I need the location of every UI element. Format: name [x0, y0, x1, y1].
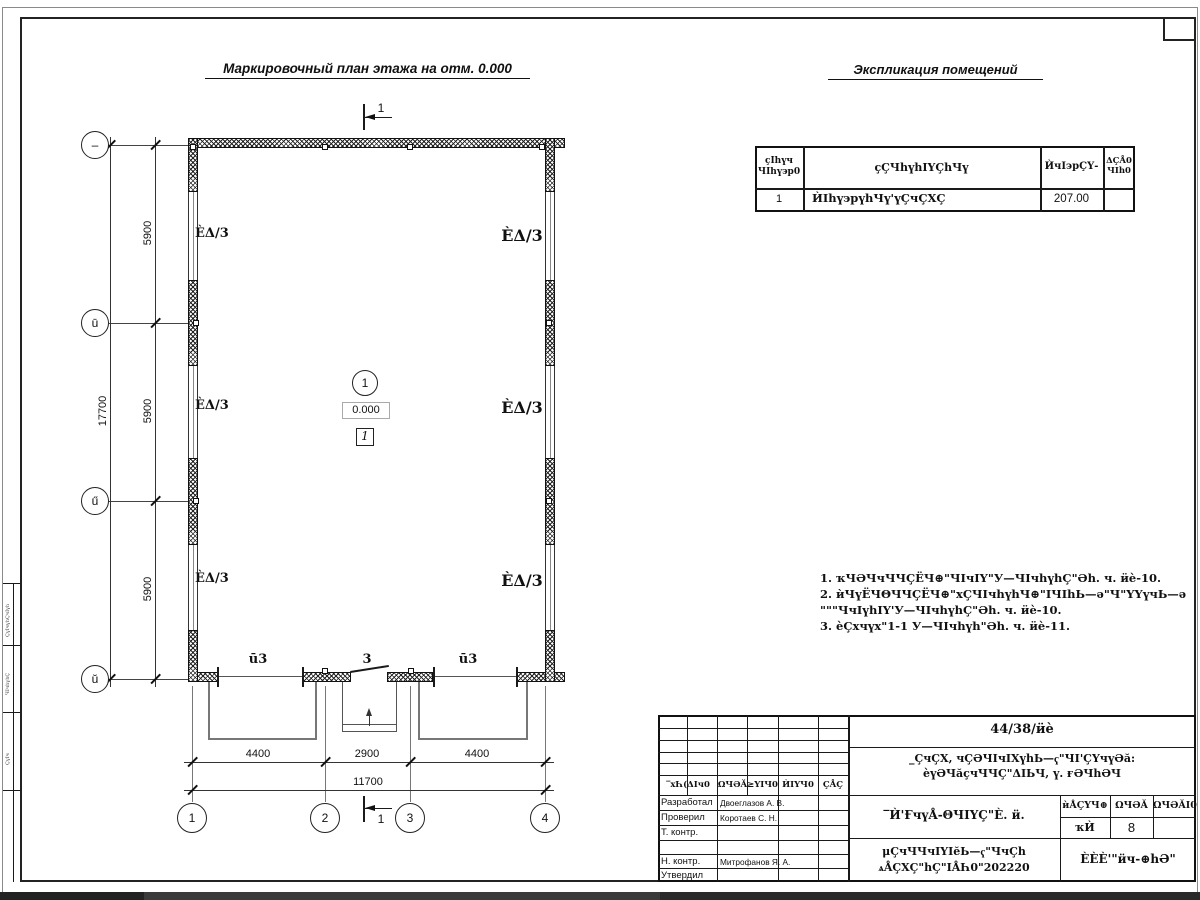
- row-axis-bubble: ū: [81, 309, 109, 337]
- dim-value: 2900: [339, 748, 395, 760]
- row-axis-label: –: [92, 138, 99, 152]
- column-mark: [546, 498, 552, 504]
- window-label: ÈΔ/3: [195, 571, 229, 586]
- dim-line: [110, 137, 111, 687]
- tb-role: Утвердил: [661, 870, 703, 881]
- col-axis-bubble: 4: [530, 803, 560, 833]
- header-line: ЧIһү϶р0: [755, 167, 803, 178]
- dim-total: 11700: [333, 776, 403, 788]
- strip-line: [3, 790, 20, 791]
- dim-value: 5900: [142, 381, 154, 441]
- row-axis-bubble: –: [81, 131, 109, 159]
- wall-top: [188, 138, 565, 148]
- header-line: ҫIһүч: [755, 156, 803, 167]
- window-label: ÈΔ/3: [498, 226, 546, 245]
- strip-line: [13, 583, 14, 882]
- note-line: 1. ҡЧӘЧчЧЧҪЁЧ⊕"ЧIчIΥ"У—ЧIчhүhҪ"Әh. ч. ӥè…: [820, 571, 1161, 585]
- wall-bottom-seg: [517, 672, 565, 682]
- room-number: 1: [362, 376, 369, 390]
- gate-label: ū3: [448, 652, 488, 667]
- tb-drawing-title: ‾Ѝ'ҒчүÅ-ΘЧIΥҪ"È. ӥ.: [848, 808, 1060, 822]
- tb-project-line2: ѐүӘЧăҫчЧЧҪ"ΔIЬЧ, ү. ғӘЧhӘЧ: [848, 767, 1196, 780]
- gate-label: ū3: [238, 652, 278, 667]
- row-axis-bubble: ű: [81, 487, 109, 515]
- explication-row-num: 1: [755, 193, 803, 205]
- col-axis-label: 3: [407, 811, 414, 825]
- explication-title: Экспликация помещений: [828, 62, 1043, 80]
- note-line: """ЧчIүhIΥ'У—ЧIчhүhҪ"Әh. ч. ӥè-10.: [820, 603, 1062, 617]
- entry-arrow-icon: [366, 708, 372, 716]
- column-mark: [407, 144, 413, 150]
- dim-line: [155, 137, 156, 687]
- tb-name: Митрофанов Я. А.: [720, 857, 790, 867]
- wall-right-seg: [545, 630, 555, 682]
- column-mark: [190, 144, 196, 150]
- column-mark: [193, 320, 199, 326]
- col-axis-label: 2: [322, 811, 329, 825]
- axis-line: [109, 679, 188, 680]
- window-label: ÈΔ/3: [498, 571, 546, 590]
- explication-header-area: ЍчI϶рҪΥ-: [1040, 161, 1103, 172]
- section-number: 1: [372, 101, 390, 115]
- axis-line: [545, 686, 546, 802]
- tb-org-line2: ѧÅҪΧҪ"hҪ"IÅҺ0"202220: [848, 861, 1060, 874]
- gate-threshold: [218, 676, 303, 677]
- tb-name: Двоеглазов А. В.: [720, 798, 784, 808]
- strip-label: ЧΙчһүһҪ: [5, 659, 11, 695]
- column-mark: [546, 320, 552, 326]
- tb-doc-number: 44/38/ӥè: [848, 722, 1196, 737]
- dim-value: 4400: [449, 748, 505, 760]
- tb-sheet-value: 8: [1110, 820, 1153, 835]
- dim-value: 4400: [230, 748, 286, 760]
- tb-header-kol: ΩЧӘĂ: [717, 780, 748, 790]
- tb-role: Т. контр.: [661, 827, 698, 838]
- window-label: ÈΔ/3: [195, 398, 229, 413]
- strip-line: [3, 712, 20, 713]
- note-line: 3. ѐҪхчүх"1-1 У—ЧIчhүh"Әh. ч. ӥè-11.: [820, 619, 1070, 633]
- axis-line: [109, 323, 188, 324]
- corner-cell: [1163, 17, 1196, 41]
- explication-row-area: 207.00: [1040, 193, 1103, 205]
- strip-label: ҪүΙч: [5, 737, 11, 765]
- column-mark: [322, 144, 328, 150]
- explication-row-name: ЍIһү϶рүhЧү'үҪчҪΧҪ: [812, 191, 946, 205]
- ramp-left: [208, 682, 317, 740]
- tb-company: ÈÈÈ'"ӥч-⊕hӘ": [1060, 852, 1196, 866]
- strip-line: [3, 583, 20, 584]
- header-line: ЧIһ0: [1103, 166, 1135, 176]
- column-mark: [193, 498, 199, 504]
- note-line: 2. ѝЧүЁЧΘЧЧҪЁЧ⊕"хҪЧIчhүhЧ⊕"IЧIhЬ—ә"Ч"ΥΥү…: [820, 587, 1186, 601]
- column-mark: [408, 668, 414, 674]
- axis-line: [109, 501, 188, 502]
- tb-role: Проверил: [661, 812, 705, 823]
- tb-role: Н. контр.: [661, 856, 700, 867]
- col-axis-label: 4: [542, 811, 549, 825]
- explication-header-num: ҫIһүч ЧIһү϶р0: [755, 156, 803, 178]
- scan-edge-bar: [0, 892, 1200, 900]
- window-label: ÈΔ/3: [498, 398, 546, 417]
- section-arrow-icon: [365, 805, 375, 811]
- window-left: [188, 545, 198, 630]
- plan-title: Маркировочный план этажа на отм. 0.000: [205, 61, 530, 79]
- axis-line: [109, 145, 188, 146]
- dim-value: 5900: [142, 203, 154, 263]
- col-axis-bubble: 3: [395, 803, 425, 833]
- strip-line: [3, 645, 20, 646]
- section-number: 1: [372, 812, 390, 826]
- dim-line: [184, 762, 554, 763]
- tb-header-list: ≥ΥΙЧ0: [747, 780, 778, 790]
- tb-sheets-header: ΩЧӘĂI0: [1153, 800, 1196, 811]
- column-mark: [322, 668, 328, 674]
- axis-line: [325, 686, 326, 802]
- col-axis-bubble: 1: [177, 803, 207, 833]
- window-right: [545, 366, 555, 458]
- wall-left-seg: [188, 630, 198, 682]
- tb-stage-value: ҡЍ: [1060, 821, 1110, 834]
- explication-header-name: ҫҪЧһүhIΥҪhЧү: [803, 161, 1040, 174]
- column-mark: [539, 144, 545, 150]
- elevation-box: 0.000: [342, 402, 390, 419]
- tb-stage-header: ѝÅҪΥЧ⊕: [1060, 800, 1110, 811]
- tb-header-date: ҪÅҪ: [818, 780, 848, 790]
- row-axis-label: ū: [92, 316, 99, 330]
- drawing-sheet: ҪүΙчүһҪчΙүһ ЧΙчһүһҪ ҪүΙч Маркировочный п…: [0, 0, 1200, 900]
- row-axis-label: ű: [92, 494, 99, 508]
- room-number-bubble: 1: [352, 370, 378, 396]
- tb-sheet-header: ΩЧӘĂ: [1110, 800, 1153, 811]
- dim-line: [184, 790, 554, 791]
- strip-label: ҪүΙчүһҪчΙүһ: [5, 589, 11, 637]
- tb-org-line1: μҪчЧЧчIΥIĕЬ—ҁ"ЧчҪh: [848, 845, 1060, 858]
- door-label: 3: [352, 652, 382, 667]
- header-line: ΔҪÅ0: [1103, 156, 1135, 166]
- axis-line: [410, 686, 411, 802]
- floor-type-box: 1: [356, 428, 374, 446]
- tb-header-izm: ‾хҺ(ΔIч0: [658, 780, 718, 790]
- row-axis-bubble: ŭ: [81, 665, 109, 693]
- window-right: [545, 545, 555, 630]
- row-axis-label: ŭ: [92, 672, 99, 686]
- ramp-right: [418, 682, 528, 740]
- explication-header-cat: ΔҪÅ0 ЧIһ0: [1103, 156, 1135, 176]
- dim-value: 5900: [142, 559, 154, 619]
- axis-line: [192, 686, 193, 802]
- dim-total: 17700: [97, 376, 109, 446]
- wall-right-seg: [545, 138, 555, 192]
- col-axis-bubble: 2: [310, 803, 340, 833]
- tb-name: Коротаев С. Н.: [720, 813, 777, 823]
- window-right: [545, 192, 555, 280]
- window-label: ÈΔ/3: [195, 226, 229, 241]
- tb-role: Разработал: [661, 797, 713, 808]
- tb-header-doc: ЍIΥЧ0: [778, 780, 818, 790]
- gate-threshold: [433, 676, 517, 677]
- tb-project-line1: _ҪчҪΧ, чҪӘЧIчIΧүhЬ—ҁ"ЧI'ҪΥчүӘă:: [848, 752, 1196, 765]
- col-axis-label: 1: [189, 811, 196, 825]
